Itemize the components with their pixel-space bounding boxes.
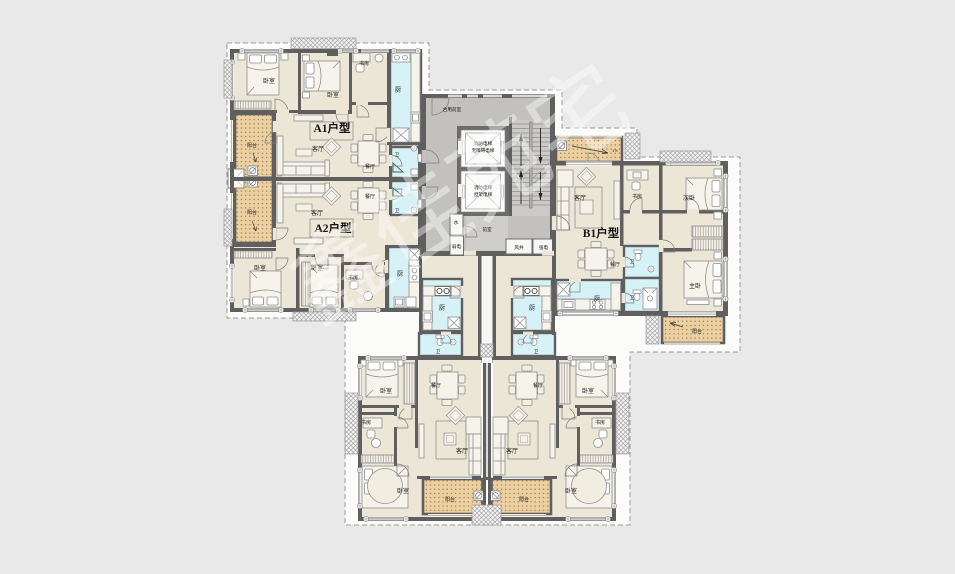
svg-text:阳台: 阳台 xyxy=(692,328,702,335)
svg-text:阳台: 阳台 xyxy=(445,496,455,503)
svg-text:书房: 书房 xyxy=(595,419,605,426)
svg-text:厨: 厨 xyxy=(439,305,445,312)
svg-text:客厅: 客厅 xyxy=(456,447,468,455)
svg-text:卧室: 卧室 xyxy=(380,387,392,395)
svg-text:卫: 卫 xyxy=(395,152,400,157)
svg-text:卧室: 卧室 xyxy=(263,77,275,85)
svg-text:合用前室: 合用前室 xyxy=(443,106,462,113)
svg-text:卫: 卫 xyxy=(630,259,635,264)
svg-text:餐厅: 餐厅 xyxy=(533,382,543,389)
svg-text:卫: 卫 xyxy=(630,295,635,300)
svg-text:厨: 厨 xyxy=(594,296,600,303)
svg-text:卧室: 卧室 xyxy=(397,487,409,495)
svg-text:风井: 风井 xyxy=(514,244,524,251)
svg-text:厨: 厨 xyxy=(395,87,401,94)
svg-text:卧室: 卧室 xyxy=(582,387,594,395)
svg-text:卧室: 卧室 xyxy=(254,264,266,272)
svg-text:书房: 书房 xyxy=(361,419,371,426)
svg-text:卫: 卫 xyxy=(534,349,539,354)
svg-text:客厅: 客厅 xyxy=(312,145,324,153)
svg-text:卧室: 卧室 xyxy=(565,487,577,495)
svg-text:餐厅: 餐厅 xyxy=(431,382,441,389)
svg-text:卧室: 卧室 xyxy=(327,91,339,99)
svg-text:书房: 书房 xyxy=(632,193,642,200)
svg-text:厨: 厨 xyxy=(529,305,535,312)
svg-text:客厅: 客厅 xyxy=(506,447,518,455)
svg-text:主卧: 主卧 xyxy=(689,282,701,290)
svg-text:客厅: 客厅 xyxy=(311,209,323,217)
svg-text:次卧: 次卧 xyxy=(683,194,695,202)
svg-text:卫: 卫 xyxy=(436,349,441,354)
svg-text:餐厅: 餐厅 xyxy=(365,163,375,170)
svg-text:客厅: 客厅 xyxy=(574,194,586,202)
svg-text:强电: 强电 xyxy=(539,244,549,251)
svg-text:书房: 书房 xyxy=(359,60,369,67)
svg-text:阳台: 阳台 xyxy=(519,496,529,503)
svg-text:餐厅: 餐厅 xyxy=(610,261,620,268)
svg-text:阳台: 阳台 xyxy=(247,142,257,149)
svg-text:阳台: 阳台 xyxy=(247,209,257,216)
svg-text:A1户型: A1户型 xyxy=(313,121,351,135)
svg-text:B1户型: B1户型 xyxy=(583,226,620,240)
